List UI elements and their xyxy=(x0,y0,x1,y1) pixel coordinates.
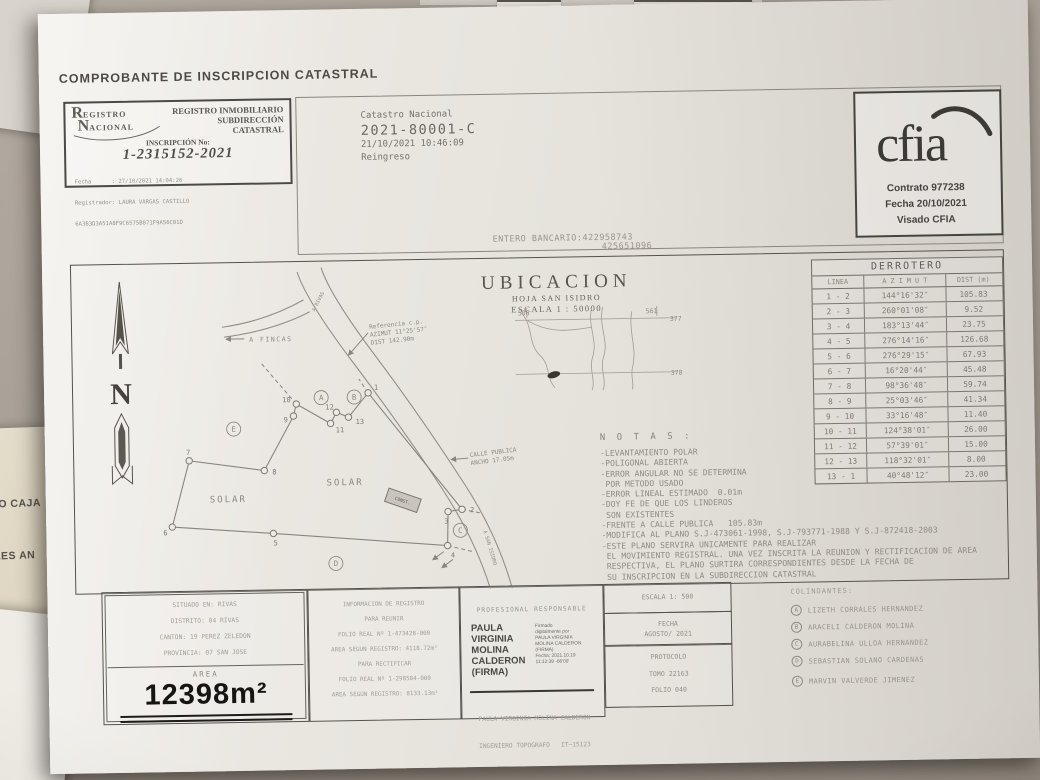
catastro-datetime: 21/10/2021 10:46:09 xyxy=(361,138,477,150)
stamp-codigo: 6A3B3D3A51A8F9C6575B871F9A56C01D xyxy=(75,220,190,229)
table-cell: 9 - 10 xyxy=(814,409,866,424)
vertex-marker xyxy=(169,524,176,531)
firmante-nombre-line: CALDERON xyxy=(471,655,525,667)
vertex-marker xyxy=(445,508,452,515)
inset-grid-number: 377 xyxy=(670,315,682,323)
profesional-box: PROFESIONAL RESPONSABLE PAULAVIRGINIAMOL… xyxy=(459,584,605,719)
colindantes-block: COLINDANTES: ALIZETH CORRALES HERNANDEZB… xyxy=(790,584,1022,693)
colindante-name: LIZETH CORRALES HERNANDEZ xyxy=(808,604,923,614)
colindante-name: SEBASTIAN SOLANO CARDENAS xyxy=(809,655,924,665)
table-cell: 1 - 2 xyxy=(812,289,864,304)
colindancia-letter: A xyxy=(319,393,324,402)
colindante-letter: C xyxy=(791,639,802,650)
notas-block: N O T A S : -LEVANTAMIENTO POLAR-POLIGON… xyxy=(600,426,1004,582)
vertex-label: 6 xyxy=(163,529,167,537)
vertex-label: 8 xyxy=(272,468,276,476)
vertex-label: 4 xyxy=(451,551,455,559)
colindante-name: AURABELINA ULLOA HERNANDEZ xyxy=(808,638,928,648)
firmante-footer: PAULA VIRGINIA MOLINA CALDERON INGENIERO… xyxy=(464,695,605,769)
colindante-name: MARVIN VALVERDE JIMENEZ xyxy=(809,675,915,685)
table-cell: 98°36'48″ xyxy=(866,377,948,392)
colindante-item: DSEBASTIAN SOLANO CARDENAS xyxy=(792,652,1022,667)
colindante-item: ALIZETH CORRALES HERNANDEZ xyxy=(791,601,1021,616)
entero-bancario-line2: 425651096 xyxy=(602,241,653,252)
vertex-marker xyxy=(365,390,372,397)
escala-box: ESCALA 1: 500 xyxy=(603,582,731,614)
stamp-registrador: Registrador: LAURA VARGAS CASTILLO xyxy=(75,199,190,208)
firma-digital-line: 11:12:39 -06'00' xyxy=(536,659,582,666)
vertex-marker xyxy=(261,467,268,474)
colindantes-list: ALIZETH CORRALES HERNANDEZBARACELI CALDE… xyxy=(791,601,1022,687)
vertex-label: 1 xyxy=(374,384,378,392)
table-cell: 11.40 xyxy=(948,406,1002,421)
cfia-visa-lines: Contrato 977238 Fecha 20/10/2021 Visado … xyxy=(857,179,996,229)
public-road xyxy=(221,265,512,594)
table-cell: 4 - 5 xyxy=(813,334,865,349)
firmante-nombre-line: VIRGINIA xyxy=(471,633,525,645)
table-cell: 9.52 xyxy=(947,301,1001,316)
protocolo-box: PROTOCOLO TOMO 22163 FOLIO 040 xyxy=(604,643,733,708)
reference-annotation: Referencia c.p. AZIMUT 11°25'57″ DIST 14… xyxy=(369,318,429,347)
colindancia-letter: B xyxy=(352,393,357,402)
signature-line xyxy=(470,689,594,693)
table-cell: 23.75 xyxy=(947,316,1001,331)
catastro-nacional-block: Catastro Nacional 2021-80001-C 21/10/202… xyxy=(360,109,476,163)
vertex-marker xyxy=(293,401,300,408)
firmante-nombre: PAULAVIRGINIAMOLINACALDERON(FIRMA) xyxy=(471,622,526,678)
catastro-title: Catastro Nacional xyxy=(360,109,476,121)
colindante-letter: A xyxy=(791,605,802,616)
stamp-fine-print: Fecha : 27/10/2021 14:04:26 Registrador:… xyxy=(74,164,190,243)
firmante-footer-role: INGENIERO TOPOGRAFO IT—15123 xyxy=(465,740,605,751)
calle-publica-arrow xyxy=(451,458,468,459)
firma-digital: Firmadodigitalmente porPAULA VIRGINIAMOL… xyxy=(535,623,582,666)
firmante-nombre-line: PAULA xyxy=(471,622,525,634)
vertex-label: 7 xyxy=(186,449,190,457)
colindancia-letter: C xyxy=(458,526,463,535)
fecha-box: FECHA AGOSTO/ 2021 xyxy=(604,610,733,646)
a-fincas-label: A FINCAS xyxy=(249,335,292,344)
vertex-marker xyxy=(459,506,466,513)
colindancia-letter: D xyxy=(334,559,339,568)
solar-label: SOLAR xyxy=(210,495,247,506)
table-cell: 59.74 xyxy=(948,376,1002,391)
firmante-nombre-line: (FIRMA) xyxy=(472,666,526,678)
table-cell: 276°29'15″ xyxy=(865,347,947,362)
escala-fecha-protocolo-column: ESCALA 1: 500 FECHA AGOSTO/ 2021 PROTOCO… xyxy=(603,582,733,717)
vertex-marker xyxy=(345,414,352,421)
colindante-letter: E xyxy=(792,676,803,687)
table-cell: 16°20'44″ xyxy=(866,362,948,377)
colindante-item: EMARVIN VALVERDE JIMENEZ xyxy=(792,672,1022,687)
inset-map-lines xyxy=(515,306,677,392)
table-cell: 2 - 3 xyxy=(813,304,865,319)
registro-info-box: INFORMACION DE REGISTROPARA REUNIRFOLIO … xyxy=(307,586,461,722)
photo-scene: O CAJA LES AN MA SOL COMPROBANTE DE INSC… xyxy=(0,0,1040,780)
ubicacion-inset: UBICACION HOJA SAN ISIDRO ESCALA 1 : 500… xyxy=(481,270,683,392)
protocolo-tomo: TOMO 22163 xyxy=(606,669,732,679)
table-cell: 105.83 xyxy=(946,286,1000,301)
vertex-marker xyxy=(186,458,193,465)
ubicacion-hoja: HOJA SAN ISIDRO xyxy=(512,293,601,303)
stamp-dept-line: CATASTRAL xyxy=(172,124,283,136)
road-destination-label: A SAN ISIDRO xyxy=(481,530,497,566)
colindancia-letter: E xyxy=(231,425,236,434)
background-text-fragment: LES AN xyxy=(0,549,35,562)
site-location-mark xyxy=(547,370,561,380)
registro-lines: INFORMACION DE REGISTROPARA REUNIRFOLIO … xyxy=(308,596,460,703)
inscripcion-number: 1-2315152-2021 xyxy=(66,144,290,165)
fecha-label: FECHA xyxy=(605,618,731,628)
protocolo-label: PROTOCOLO xyxy=(605,652,731,662)
table-cell: 6 - 7 xyxy=(814,364,866,379)
escala-value: ESCALA 1: 500 xyxy=(604,592,730,602)
ubicacion-title: UBICACION xyxy=(481,270,632,293)
north-letter: N xyxy=(110,378,133,411)
registro-nacional-stamp: REGISTRO NACIONAL REGISTRO INMOBILIARIO … xyxy=(63,98,292,188)
table-cell: 3 - 4 xyxy=(813,319,865,334)
situado-lines: SITUADO EN: RIVASDISTRITO: 04 RIVASCANTO… xyxy=(102,596,307,663)
catastro-status: Reingreso xyxy=(361,151,477,163)
solar-label: SOLAR xyxy=(327,478,364,489)
road-destination-label: A RIVAS xyxy=(311,291,326,313)
stamp-department: REGISTRO INMOBILIARIO SUBDIRECCIÓN CATAS… xyxy=(172,104,284,136)
table-cell: 126.68 xyxy=(947,331,1001,346)
stamp-fecha: Fecha : 27/10/2021 14:04:26 xyxy=(75,178,190,187)
dashed-tie-lines xyxy=(261,359,482,556)
vertex-label: 2 xyxy=(470,506,474,514)
vertex-label: 13 xyxy=(356,418,365,426)
vertex-label: 9 xyxy=(283,416,287,424)
vertex-marker xyxy=(270,530,277,537)
road-tick xyxy=(433,552,444,560)
reference-leader xyxy=(348,333,368,355)
area-value: 12398m² xyxy=(104,677,309,713)
registro-line: AREA SEGUN REGISTRO: 4118.72m² xyxy=(309,641,459,658)
registro-nacional-logo: REGISTRO NACIONAL xyxy=(71,106,163,138)
table-cell: 183°13'44″ xyxy=(865,317,947,332)
inset-grid-number: 506 xyxy=(518,309,530,317)
notas-lines: -LEVANTAMIENTO POLAR-POLIGONAL ABIERTA-E… xyxy=(600,441,1004,582)
registro-line: AREA SEGUN REGISTRO: 8133.13m² xyxy=(310,686,460,703)
vertex-marker xyxy=(290,413,297,420)
vertex-label: 12 xyxy=(325,403,334,411)
table-cell: 25°03'46″ xyxy=(866,392,948,407)
calle-publica-annotation: CALLE PUBLICA ANCHO 17.05m xyxy=(469,446,518,467)
situado-area-box: SITUADO EN: RIVASDISTRITO: 04 RIVASCANTO… xyxy=(101,589,309,725)
colindante-letter: B xyxy=(791,622,802,633)
column-header: LINEA xyxy=(812,276,864,289)
vertex-label: 11 xyxy=(336,426,345,434)
colindante-name: ARACELI CALDERON MOLINA xyxy=(808,621,914,631)
column-header: DIST (m) xyxy=(946,273,1000,286)
colindante-item: BARACELI CALDERON MOLINA xyxy=(791,618,1021,633)
table-cell: 7 - 8 xyxy=(814,379,866,394)
background-text-fragment: O CAJA xyxy=(0,497,41,510)
firmante-nombre-line: MOLINA xyxy=(471,644,525,656)
column-header: A Z I M U T xyxy=(864,274,946,287)
cfia-logo: cfia xyxy=(857,97,1002,179)
situado-line: PROVINCIA: 07 SAN JOSE xyxy=(103,644,307,663)
table-cell: 5 - 6 xyxy=(813,349,865,364)
table-cell: 8 - 9 xyxy=(814,394,866,409)
vertex-marker xyxy=(327,420,334,427)
table-cell: 144°16'32″ xyxy=(864,287,946,302)
fecha-value: AGOSTO/ 2021 xyxy=(605,628,731,638)
vertex-marker xyxy=(444,542,451,549)
document-heading: COMPROBANTE DE INSCRIPCION CATASTRAL xyxy=(59,67,379,86)
profesional-title: PROFESIONAL RESPONSABLE xyxy=(461,605,603,614)
construction-mark: CONST. xyxy=(385,488,422,512)
table-cell: 33°16'48″ xyxy=(866,407,948,422)
table-cell: 67.93 xyxy=(947,346,1001,361)
cadastral-document-sheet: COMPROBANTE DE INSCRIPCION CATASTRAL REG… xyxy=(38,0,1040,774)
svg-text:cfia: cfia xyxy=(876,115,949,173)
cfia-visado: Visado CFIA xyxy=(857,211,995,229)
table-cell: 260°01'08″ xyxy=(865,302,947,317)
inset-grid-number: 378 xyxy=(671,369,683,377)
table-cell: 45.48 xyxy=(948,361,1002,376)
colindante-item: CAURABELINA ULLOA HERNANDEZ xyxy=(791,635,1021,650)
survey-plan-box: N xyxy=(70,249,1009,594)
table-cell: 41.34 xyxy=(948,391,1002,406)
vertex-marker xyxy=(333,409,340,416)
firmante-footer-name: PAULA VIRGINIA MOLINA CALDERON xyxy=(464,713,604,724)
vertex-label: 3 xyxy=(444,518,448,526)
protocolo-folio: FOLIO 040 xyxy=(606,685,732,695)
colindantes-title: COLINDANTES: xyxy=(790,584,1020,596)
catastro-number: 2021-80001-C xyxy=(361,121,477,139)
cfia-seal-box: cfia Contrato 977238 Fecha 20/10/2021 Vi… xyxy=(853,89,1003,237)
vertex-label: 5 xyxy=(274,539,278,547)
table-cell: 276°14'16″ xyxy=(865,332,947,347)
road-tick xyxy=(442,559,453,567)
colindante-letter: D xyxy=(792,656,803,667)
north-arrow: N xyxy=(108,282,133,484)
vertex-label: 10 xyxy=(282,396,291,404)
inset-grid-number: 561 xyxy=(646,307,658,315)
